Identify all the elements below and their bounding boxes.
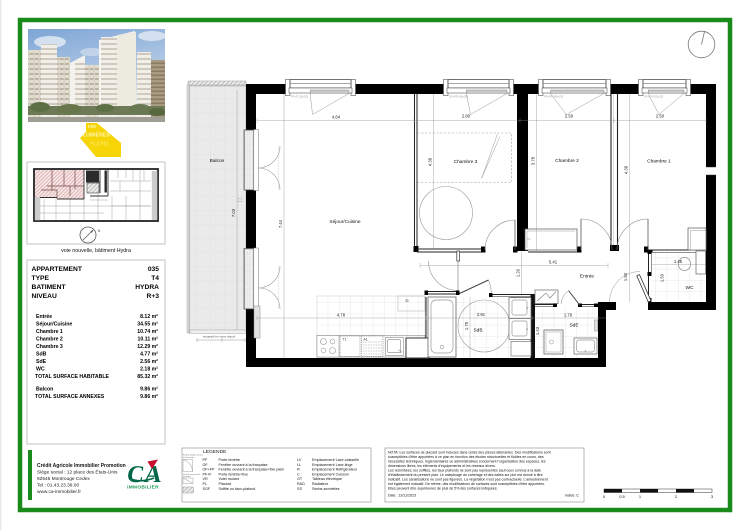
svg-text:1.43: 1.43: [535, 326, 540, 335]
svg-text:est également indicatif. De mê: est également indicatif. De même, des mo…: [388, 482, 545, 486]
svg-text:T1: T1: [343, 338, 347, 342]
svg-text:LEGENDE: LEGENDE: [203, 449, 227, 455]
svg-text:française: française: [183, 475, 191, 478]
svg-text:Crédit Agricole Immobilier Pro: Crédit Agricole Immobilier Promotion: [37, 463, 126, 469]
svg-text:2.18 m²: 2.18 m²: [140, 367, 158, 373]
svg-text:12.29 m²: 12.29 m²: [137, 344, 158, 350]
svg-text:Chambre 1: Chambre 1: [647, 159, 671, 165]
svg-text:voie nouvelle, bâtiment Hydra: voie nouvelle, bâtiment Hydra: [61, 248, 131, 254]
svg-text:NOTA: Les surfaces de placard: NOTA: Les surfaces de placard sont inclu…: [388, 451, 551, 455]
svg-text:9.86 m²: 9.86 m²: [140, 387, 158, 393]
svg-text:Chambre 3: Chambre 3: [36, 344, 63, 350]
svg-text:PL: PL: [203, 482, 208, 486]
svg-text:WC: WC: [36, 367, 45, 373]
svg-text:Emplacement Lave-linge: Emplacement Lave-linge: [312, 463, 353, 467]
svg-text:séparatif en verre dépoli: séparatif en verre dépoli: [203, 335, 236, 339]
svg-text:www.ca-immobilier.fr: www.ca-immobilier.fr: [37, 489, 81, 495]
svg-text:APPARTEMENT: APPARTEMENT: [32, 266, 83, 273]
svg-text:10.11 m²: 10.11 m²: [138, 337, 159, 343]
svg-text:Fenêtre ouvrant à la française: Fenêtre ouvrant à la française+fixe plei…: [219, 468, 285, 472]
svg-text:SdB: SdB: [473, 328, 482, 334]
svg-text:Chambre 2: Chambre 2: [36, 337, 63, 343]
svg-text:30: 30: [405, 299, 409, 303]
svg-text:Balcon: Balcon: [36, 387, 53, 393]
svg-text:susceptibles d'être apportées: susceptibles d'être apportées à ce plan …: [388, 455, 544, 459]
svg-text:Sèche-serviettes: Sèche-serviettes: [312, 487, 340, 491]
svg-text:OF: OF: [203, 463, 209, 467]
svg-text:Elles peuvent être supérieures: Elles peuvent être supérieures de plus d…: [388, 487, 498, 491]
svg-text:Siège social : 12 place des Ét: Siège social : 12 place des États-Unis: [37, 469, 118, 476]
svg-text:SdE: SdE: [36, 359, 47, 365]
svg-text:7.44: 7.44: [278, 219, 283, 228]
svg-text:Séjour/Cuisine: Séjour/Cuisine: [329, 219, 361, 225]
svg-text:SS: SS: [297, 487, 302, 491]
svg-text:PL: PL: [528, 237, 532, 241]
svg-text:SdE: SdE: [569, 323, 578, 329]
svg-text:Emplacement Cuisson: Emplacement Cuisson: [312, 472, 349, 476]
svg-text:OF+FP: OF+FP: [203, 468, 216, 472]
svg-text:2.50: 2.50: [565, 114, 574, 119]
svg-text:92545 Montrouge Cedex: 92545 Montrouge Cedex: [37, 476, 90, 482]
svg-text:TOTAL SURFACE HABITABLE: TOTAL SURFACE HABITABLE: [35, 374, 110, 380]
svg-text:PF+F 215x215: PF+F 215x215: [291, 95, 309, 99]
svg-text:R: R: [297, 468, 300, 472]
svg-text:2.80: 2.80: [462, 114, 471, 119]
svg-text:Entrée: Entrée: [580, 274, 594, 280]
svg-text:CA: CA: [125, 462, 164, 488]
svg-text:2.56 m²: 2.56 m²: [140, 359, 158, 365]
svg-text:PF+F: PF+F: [203, 472, 213, 476]
svg-text:Porte-fenêtre+fixe: Porte-fenêtre+fixe: [219, 472, 248, 476]
svg-text:Indice :C: Indice :C: [565, 494, 579, 498]
svg-text:Séjour/Cuisine: Séjour/Cuisine: [36, 322, 72, 328]
svg-text:Fenêtre ouvrant à la française: Fenêtre ouvrant à la française: [219, 463, 268, 467]
svg-text:85.32 m²: 85.32 m²: [137, 374, 158, 380]
svg-text:Date : 13/11/2023: Date : 13/11/2023: [388, 494, 416, 498]
svg-text:BATIMENT: BATIMENT: [32, 284, 67, 291]
svg-text:indicatif. Les canalisations n: indicatif. Les canalisations ne sont pas…: [388, 478, 548, 482]
svg-text:LV: LV: [297, 458, 302, 462]
svg-text:Emplacement Lave-vaisselle: Emplacement Lave-vaisselle: [312, 458, 359, 462]
svg-text:dimensions libres, les élément: dimensions libres, les éléments d'équipe…: [388, 464, 496, 468]
svg-text:OF+FP 100x135: OF+FP 100x135: [644, 95, 664, 99]
svg-text:035: 035: [148, 266, 159, 273]
svg-text:à la française: à la française: [183, 456, 194, 459]
svg-text:3.78: 3.78: [531, 156, 536, 165]
svg-text:RAD: RAD: [297, 482, 305, 486]
svg-text:LL: LL: [297, 463, 301, 467]
svg-text:LES: LES: [88, 124, 96, 129]
svg-text:9.86 m²: 9.86 m²: [140, 394, 158, 400]
svg-text:Soffite ou faux-plafond: Soffite ou faux-plafond: [219, 487, 256, 491]
svg-text:Balcon: Balcon: [210, 158, 225, 164]
svg-text:5.41: 5.41: [549, 260, 558, 265]
svg-text:NIVEAU: NIVEAU: [32, 293, 57, 300]
svg-text:4.64: 4.64: [332, 115, 341, 120]
svg-text:Porte-fenêtre: Porte-fenêtre: [219, 458, 241, 462]
svg-text:LUMIÈRES: LUMIÈRES: [83, 131, 110, 139]
svg-text:A1: A1: [364, 338, 368, 342]
svg-text:4.39: 4.39: [428, 157, 433, 166]
svg-text:4.39: 4.39: [624, 165, 629, 174]
svg-text:OF+FP 140x135: OF+FP 140x135: [544, 95, 564, 99]
svg-text:Radiateur: Radiateur: [312, 482, 329, 486]
svg-text:GT: GT: [297, 477, 303, 481]
svg-text:1.50: 1.50: [660, 273, 665, 282]
svg-text:4.78: 4.78: [337, 313, 346, 318]
svg-text:SOF: SOF: [203, 487, 211, 491]
svg-text:nécessités techniques, régleme: nécessités techniques, réglementaires ou…: [388, 460, 546, 464]
svg-text:Chambre 1: Chambre 1: [36, 329, 63, 335]
svg-text:Entrée: Entrée: [36, 314, 52, 320]
svg-text:R+3: R+3: [147, 293, 160, 300]
svg-text:10.74 m²: 10.74 m²: [137, 329, 158, 335]
svg-text:8.12 m²: 8.12 m²: [140, 314, 158, 320]
svg-text:IMMOBILIER: IMMOBILIER: [127, 485, 159, 491]
svg-text:TYPE: TYPE: [32, 275, 50, 282]
svg-text:Volet roulant: Volet roulant: [219, 477, 240, 481]
svg-text:Les retombées, les soffites, l: Les retombées, les soffites, les faux pl…: [388, 469, 541, 473]
svg-text:Chambre 2: Chambre 2: [555, 158, 579, 164]
svg-text:2.50: 2.50: [656, 114, 665, 119]
svg-text:Placard: Placard: [219, 482, 232, 486]
svg-text:T4: T4: [151, 275, 159, 282]
svg-text:d'établissement du présent pla: d'établissement du présent plan. Le cale…: [388, 473, 543, 477]
svg-text:2.91: 2.91: [477, 312, 486, 317]
svg-text:7.03: 7.03: [231, 208, 236, 217]
svg-text:HYDRA: HYDRA: [135, 284, 159, 291]
svg-text:C: C: [297, 472, 300, 476]
svg-text:SdB: SdB: [36, 352, 47, 358]
svg-text:Tel : 01.43.23.39.00: Tel : 01.43.23.39.00: [37, 483, 79, 489]
svg-text:PLEYEL: PLEYEL: [90, 142, 111, 148]
svg-text:1.50: 1.50: [623, 272, 628, 281]
svg-text:PF: PF: [203, 458, 208, 462]
svg-text:Emplacement Réfrigérateur: Emplacement Réfrigérateur: [312, 468, 358, 472]
svg-text:1.20: 1.20: [516, 268, 521, 277]
svg-text:1.45: 1.45: [674, 259, 683, 264]
svg-text:OF+FP 140x135: OF+FP 140x135: [449, 95, 469, 99]
svg-text:0.5: 0.5: [619, 494, 625, 499]
svg-text:VR: VR: [203, 477, 208, 481]
svg-text:WC: WC: [686, 285, 695, 291]
svg-text:Chambre 3: Chambre 3: [454, 159, 478, 165]
svg-text:1.75: 1.75: [464, 321, 469, 330]
svg-text:4.77 m²: 4.77 m²: [140, 352, 158, 358]
svg-text:34.55 m²: 34.55 m²: [137, 322, 158, 328]
svg-text:1.79: 1.79: [564, 313, 573, 318]
svg-text:Tableau électrique: Tableau électrique: [312, 477, 342, 481]
svg-text:TOTAL SURFACE ANNEXES: TOTAL SURFACE ANNEXES: [35, 394, 105, 400]
